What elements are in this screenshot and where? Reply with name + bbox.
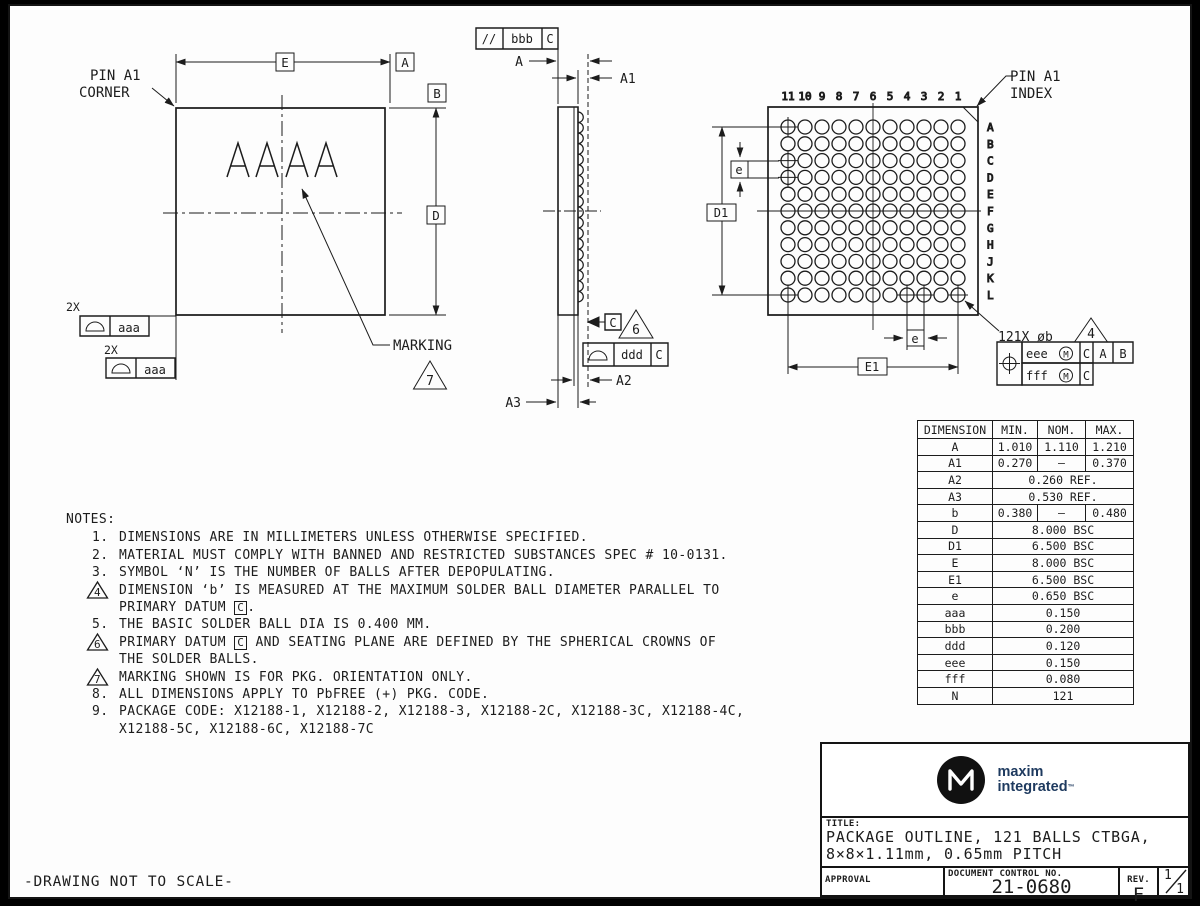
dim-nom: – bbox=[1038, 455, 1086, 472]
dim-span-value: 8.000 BSC bbox=[993, 521, 1134, 538]
dim-symbol: eee bbox=[918, 654, 993, 671]
table-row: b0.380–0.480 bbox=[918, 505, 1134, 522]
dim-max: 0.370 bbox=[1086, 455, 1134, 472]
revision-value: F bbox=[1133, 884, 1144, 906]
dim-symbol: A3 bbox=[918, 488, 993, 505]
table-header-row: DIMENSIONMIN.NOM.MAX. bbox=[918, 421, 1134, 439]
table-row: eee0.150 bbox=[918, 654, 1134, 671]
brand-logo-row: maxim integrated™ bbox=[822, 744, 1188, 816]
dim-symbol: bbb bbox=[918, 621, 993, 638]
dim-max: 0.480 bbox=[1086, 505, 1134, 522]
dim-symbol: E1 bbox=[918, 571, 993, 588]
note-number: 8. bbox=[92, 686, 119, 703]
trademark-symbol: ™ bbox=[1068, 784, 1075, 791]
dim-span-value: 0.150 bbox=[993, 604, 1134, 621]
dim-span-value: 6.500 BSC bbox=[993, 571, 1134, 588]
note-item: 4DIMENSION ‘b’ IS MEASURED AT THE MAXIMU… bbox=[66, 582, 806, 617]
dim-symbol: A1 bbox=[918, 455, 993, 472]
table-row: fff0.080 bbox=[918, 671, 1134, 688]
dim-span-value: 0.120 bbox=[993, 638, 1134, 655]
dim-symbol: N bbox=[918, 687, 993, 704]
note-item: 1.DIMENSIONS ARE IN MILLIMETERS UNLESS O… bbox=[66, 529, 806, 546]
dim-symbol: aaa bbox=[918, 604, 993, 621]
table-row: E16.500 BSC bbox=[918, 571, 1134, 588]
brand-line1: maxim bbox=[997, 765, 1074, 780]
table-header: NOM. bbox=[1038, 421, 1086, 439]
dim-span-value: 0.150 bbox=[993, 654, 1134, 671]
dim-span-value: 0.530 REF. bbox=[993, 488, 1134, 505]
table-row: A10.270–0.370 bbox=[918, 455, 1134, 472]
svg-text:7: 7 bbox=[94, 673, 101, 686]
note-number: 9. bbox=[92, 703, 119, 720]
title-block-bottom-row: APPROVAL DOCUMENT CONTROL NO. 21-0680 RE… bbox=[822, 866, 1188, 897]
table-row: E8.000 BSC bbox=[918, 555, 1134, 572]
table-row: bbb0.200 bbox=[918, 621, 1134, 638]
dim-symbol: ddd bbox=[918, 638, 993, 655]
dim-symbol: b bbox=[918, 505, 993, 522]
maxim-logo-icon bbox=[935, 754, 987, 806]
dim-min: 0.270 bbox=[993, 455, 1038, 472]
approval-cell: APPROVAL bbox=[822, 868, 943, 897]
svg-text:6: 6 bbox=[94, 638, 101, 651]
dim-nom: 1.110 bbox=[1038, 439, 1086, 456]
note-item: 7MARKING SHOWN IS FOR PKG. ORIENTATION O… bbox=[66, 669, 806, 686]
note-item: 2.MATERIAL MUST COMPLY WITH BANNED AND R… bbox=[66, 547, 806, 564]
note-item: 5.THE BASIC SOLDER BALL DIA IS 0.400 MM. bbox=[66, 616, 806, 633]
dim-min: 1.010 bbox=[993, 439, 1038, 456]
dim-min: 0.380 bbox=[993, 505, 1038, 522]
dim-span-value: 121 bbox=[993, 687, 1134, 704]
dim-symbol: D bbox=[918, 521, 993, 538]
table-header: MAX. bbox=[1086, 421, 1134, 439]
dim-symbol: A bbox=[918, 439, 993, 456]
table-row: D16.500 BSC bbox=[918, 538, 1134, 555]
note-number: 2. bbox=[92, 547, 119, 564]
document-control-number: 21-0680 bbox=[991, 876, 1071, 898]
note-number: 1. bbox=[92, 529, 119, 546]
dim-symbol: fff bbox=[918, 671, 993, 688]
scale-note: -DRAWING NOT TO SCALE- bbox=[24, 874, 234, 890]
notes-heading: NOTES: bbox=[66, 511, 806, 528]
sheet-total: 1 bbox=[1176, 882, 1184, 897]
note-text: PACKAGE CODE: X12188-1, X12188-2, X12188… bbox=[119, 703, 744, 738]
note-item: 9.PACKAGE CODE: X12188-1, X12188-2, X121… bbox=[66, 703, 806, 738]
note-text: SYMBOL ‘N’ IS THE NUMBER OF BALLS AFTER … bbox=[119, 564, 555, 581]
brand-line2: integrated™ bbox=[997, 780, 1074, 795]
table-header: DIMENSION bbox=[918, 421, 993, 439]
dim-symbol: e bbox=[918, 588, 993, 605]
dim-symbol: A2 bbox=[918, 472, 993, 489]
table-row: A1.0101.1101.210 bbox=[918, 439, 1134, 456]
notes-list: 1.DIMENSIONS ARE IN MILLIMETERS UNLESS O… bbox=[66, 529, 806, 738]
table-row: N121 bbox=[918, 687, 1134, 704]
table-row: A30.530 REF. bbox=[918, 488, 1134, 505]
dim-span-value: 0.200 bbox=[993, 621, 1134, 638]
title-block: maxim integrated™ TITLE: PACKAGE OUTLINE… bbox=[820, 742, 1190, 897]
table-row: D8.000 BSC bbox=[918, 521, 1134, 538]
table-header: MIN. bbox=[993, 421, 1038, 439]
title-section: TITLE: PACKAGE OUTLINE, 121 BALLS CTBGA,… bbox=[822, 816, 1188, 866]
dim-max: 1.210 bbox=[1086, 439, 1134, 456]
note-text: ALL DIMENSIONS APPLY TO PbFREE (+) PKG. … bbox=[119, 686, 489, 703]
note-text: PRIMARY DATUM C AND SEATING PLANE ARE DE… bbox=[119, 634, 716, 669]
brand-wordmark: maxim integrated™ bbox=[997, 765, 1074, 795]
approval-label: APPROVAL bbox=[825, 875, 871, 885]
svg-text:4: 4 bbox=[94, 586, 101, 599]
note-item: 3.SYMBOL ‘N’ IS THE NUMBER OF BALLS AFTE… bbox=[66, 564, 806, 581]
table-row: aaa0.150 bbox=[918, 604, 1134, 621]
note-item: 8.ALL DIMENSIONS APPLY TO PbFREE (+) PKG… bbox=[66, 686, 806, 703]
revision-cell: REV. F bbox=[1118, 868, 1157, 897]
note-text: DIMENSION ‘b’ IS MEASURED AT THE MAXIMUM… bbox=[119, 582, 720, 617]
drawing-title-line1: PACKAGE OUTLINE, 121 BALLS CTBGA, bbox=[826, 829, 1184, 846]
note-text: MATERIAL MUST COMPLY WITH BANNED AND RES… bbox=[119, 547, 728, 564]
dim-span-value: 0.260 REF. bbox=[993, 472, 1134, 489]
dim-span-value: 0.080 bbox=[993, 671, 1134, 688]
sheet-cell: 1 1 bbox=[1157, 868, 1188, 897]
note-text: MARKING SHOWN IS FOR PKG. ORIENTATION ON… bbox=[119, 669, 473, 686]
document-control-cell: DOCUMENT CONTROL NO. 21-0680 bbox=[943, 868, 1118, 897]
note-text: DIMENSIONS ARE IN MILLIMETERS UNLESS OTH… bbox=[119, 529, 588, 546]
notes-section: NOTES: 1.DIMENSIONS ARE IN MILLIMETERS U… bbox=[66, 511, 806, 738]
table-row: e0.650 BSC bbox=[918, 588, 1134, 605]
table-row: A20.260 REF. bbox=[918, 472, 1134, 489]
dim-span-value: 6.500 BSC bbox=[993, 538, 1134, 555]
dim-span-value: 0.650 BSC bbox=[993, 588, 1134, 605]
dim-nom: – bbox=[1038, 505, 1086, 522]
drawing-title-line2: 8×8×1.11mm, 0.65mm PITCH bbox=[826, 846, 1184, 863]
dim-symbol: D1 bbox=[918, 538, 993, 555]
note-text: THE BASIC SOLDER BALL DIA IS 0.400 MM. bbox=[119, 616, 432, 633]
note-item: 6PRIMARY DATUM C AND SEATING PLANE ARE D… bbox=[66, 634, 806, 669]
dimension-table: DIMENSIONMIN.NOM.MAX. A1.0101.1101.210A1… bbox=[917, 420, 1134, 705]
dim-span-value: 8.000 BSC bbox=[993, 555, 1134, 572]
table-row: ddd0.120 bbox=[918, 638, 1134, 655]
datum-c-boxed: C bbox=[234, 601, 247, 615]
dim-symbol: E bbox=[918, 555, 993, 572]
datum-c-boxed: C bbox=[234, 636, 247, 650]
